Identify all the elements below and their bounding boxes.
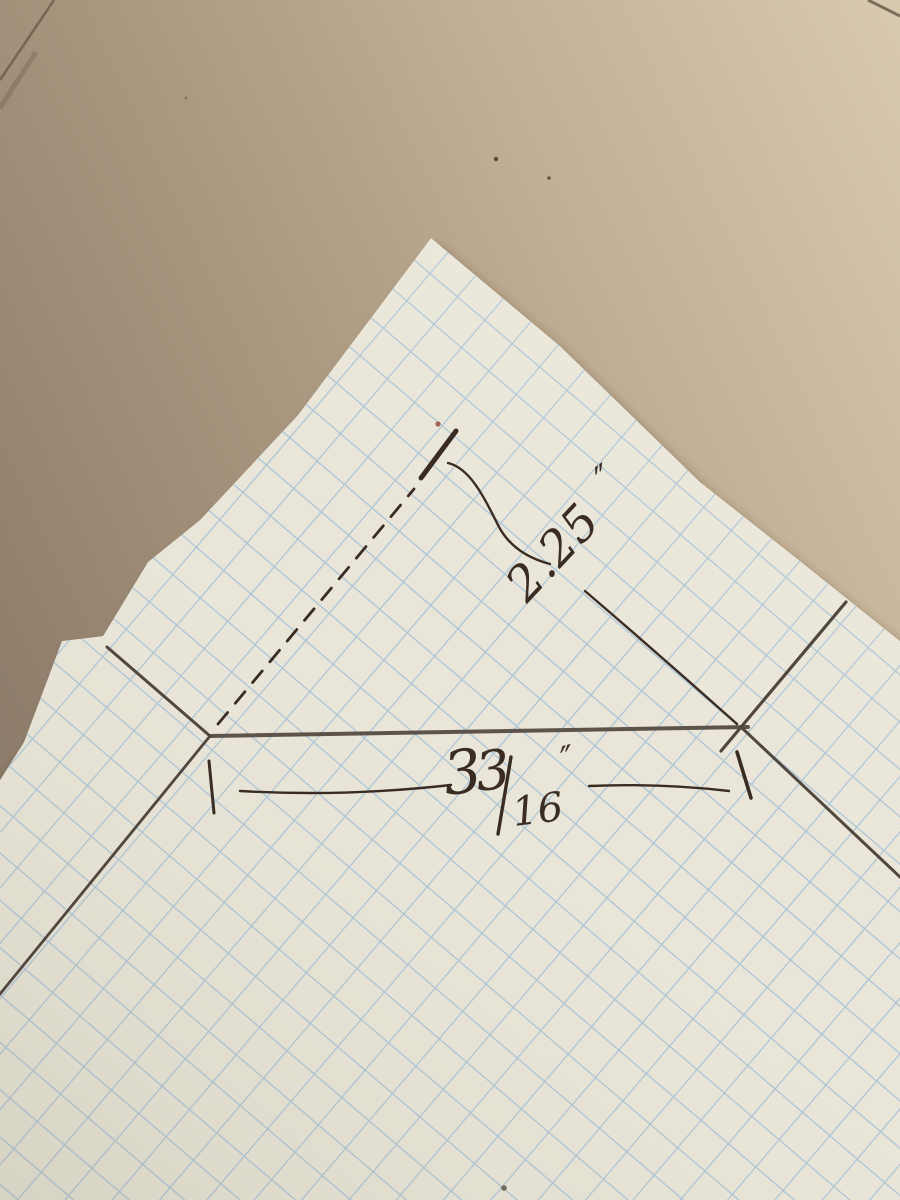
photo-measurement-sketch: 2.25 ″ 3 3 16 ″ xyxy=(0,0,900,1200)
base-measurement-denominator: 16 xyxy=(510,784,566,836)
apex-tick-red-tip xyxy=(435,421,440,426)
sketch-photo-canvas: 2.25 ″ 3 3 16 ″ xyxy=(0,0,900,1200)
speck xyxy=(494,157,498,161)
paper-debris-speck xyxy=(501,1185,507,1191)
speck xyxy=(185,97,188,100)
speck xyxy=(547,176,551,180)
